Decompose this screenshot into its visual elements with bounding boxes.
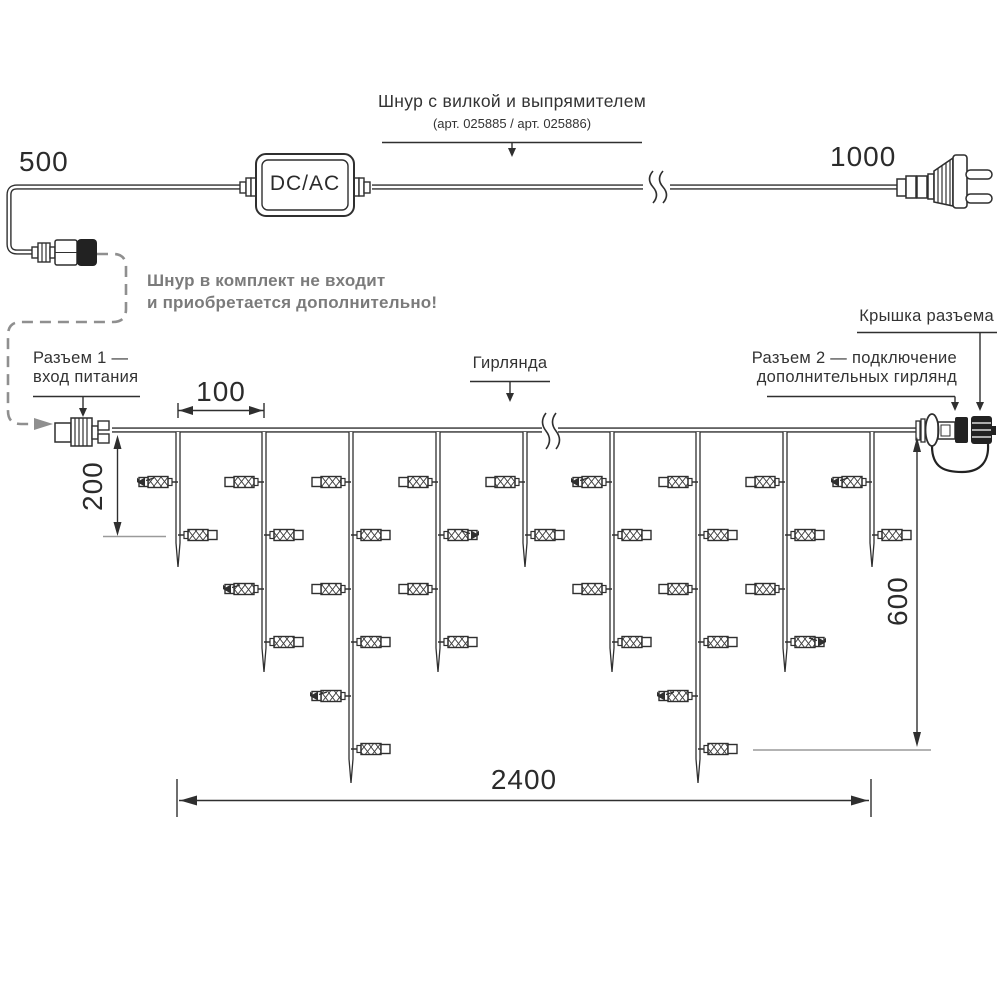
- dimension-lines: [103, 403, 931, 817]
- dim-200-label: 200: [78, 446, 108, 526]
- dim-1000-label: 1000: [830, 142, 896, 172]
- garland-cable: [112, 413, 917, 449]
- dashed-route: [8, 254, 126, 430]
- connector1: [55, 418, 109, 446]
- cap-label: Крышка разъема: [797, 308, 994, 326]
- dim-500-label: 500: [19, 147, 69, 177]
- cord-connector: [32, 239, 97, 266]
- connector1-label-line2: вход питания: [33, 369, 138, 387]
- garland-label: Гирлянда: [440, 355, 580, 373]
- connector2-label-line1: Разъем 2 — подключение: [740, 350, 957, 368]
- dim-100-label: 100: [186, 377, 256, 407]
- note-line1: Шнур в комплект не входит: [147, 272, 385, 290]
- converter-label: DC/AC: [256, 173, 354, 196]
- note-line2: и приобретается дополнительно!: [147, 294, 437, 312]
- power-cord-art: [9, 171, 898, 252]
- connector2: [916, 414, 996, 472]
- connector2-label-line2: дополнительных гирлянд: [740, 369, 957, 387]
- dim-600-label: 600: [883, 561, 913, 641]
- power-plug: [897, 155, 992, 208]
- garland-diagram: 500 1000 DC/AC Шнур с вилкой и выпрямите…: [0, 0, 1000, 1000]
- garland-drops: [137, 432, 911, 783]
- connector1-label-line1: Разъем 1 —: [33, 350, 128, 368]
- cord-title: Шнур с вилкой и выпрямителем: [342, 92, 682, 111]
- dim-2400-label: 2400: [464, 765, 584, 795]
- cord-subtitle: (арт. 025885 / арт. 025886): [372, 117, 652, 131]
